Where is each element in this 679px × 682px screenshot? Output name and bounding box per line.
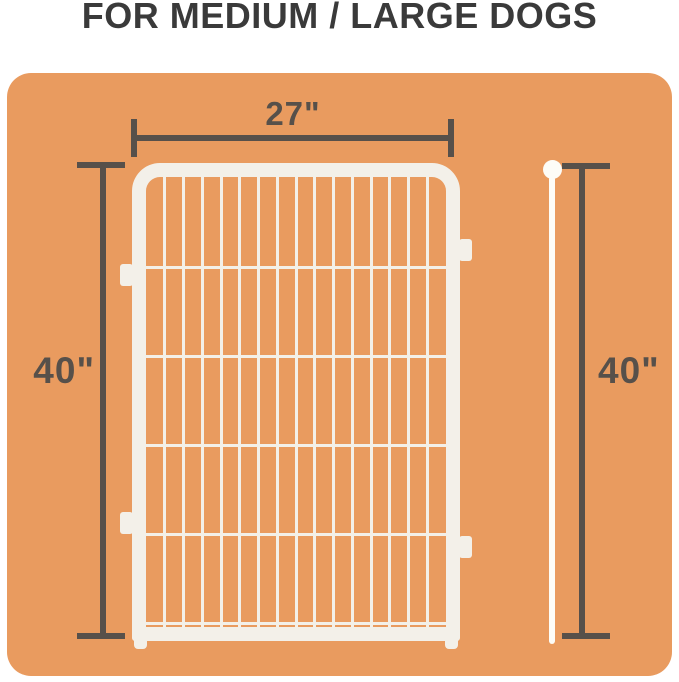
product-diagram: FOR MEDIUM / LARGE DOGS 27" 40" 40": [0, 0, 679, 682]
panel-height-label: 40": [13, 351, 95, 392]
left-height-dimension-line: [100, 166, 106, 636]
width-dimension-right-cap: [448, 119, 454, 157]
right-height-dimension-bottom-cap: [562, 633, 610, 639]
width-dimension-line: [134, 135, 452, 141]
pole-height-label: 40": [598, 351, 679, 392]
fence-connector-tab-right-bottom: [459, 536, 472, 558]
fence-panel-frame: [132, 163, 460, 641]
right-height-dimension-line: [579, 166, 585, 636]
panel-width-label: 27": [134, 96, 452, 132]
pole-top-knob: [543, 160, 562, 179]
page-title: FOR MEDIUM / LARGE DOGS: [0, 0, 679, 36]
left-height-dimension-bottom-cap: [77, 633, 125, 639]
fence-connector-tab-right-top: [459, 239, 472, 261]
pole-rod: [549, 176, 555, 644]
right-height-dimension-top-cap: [562, 163, 610, 169]
